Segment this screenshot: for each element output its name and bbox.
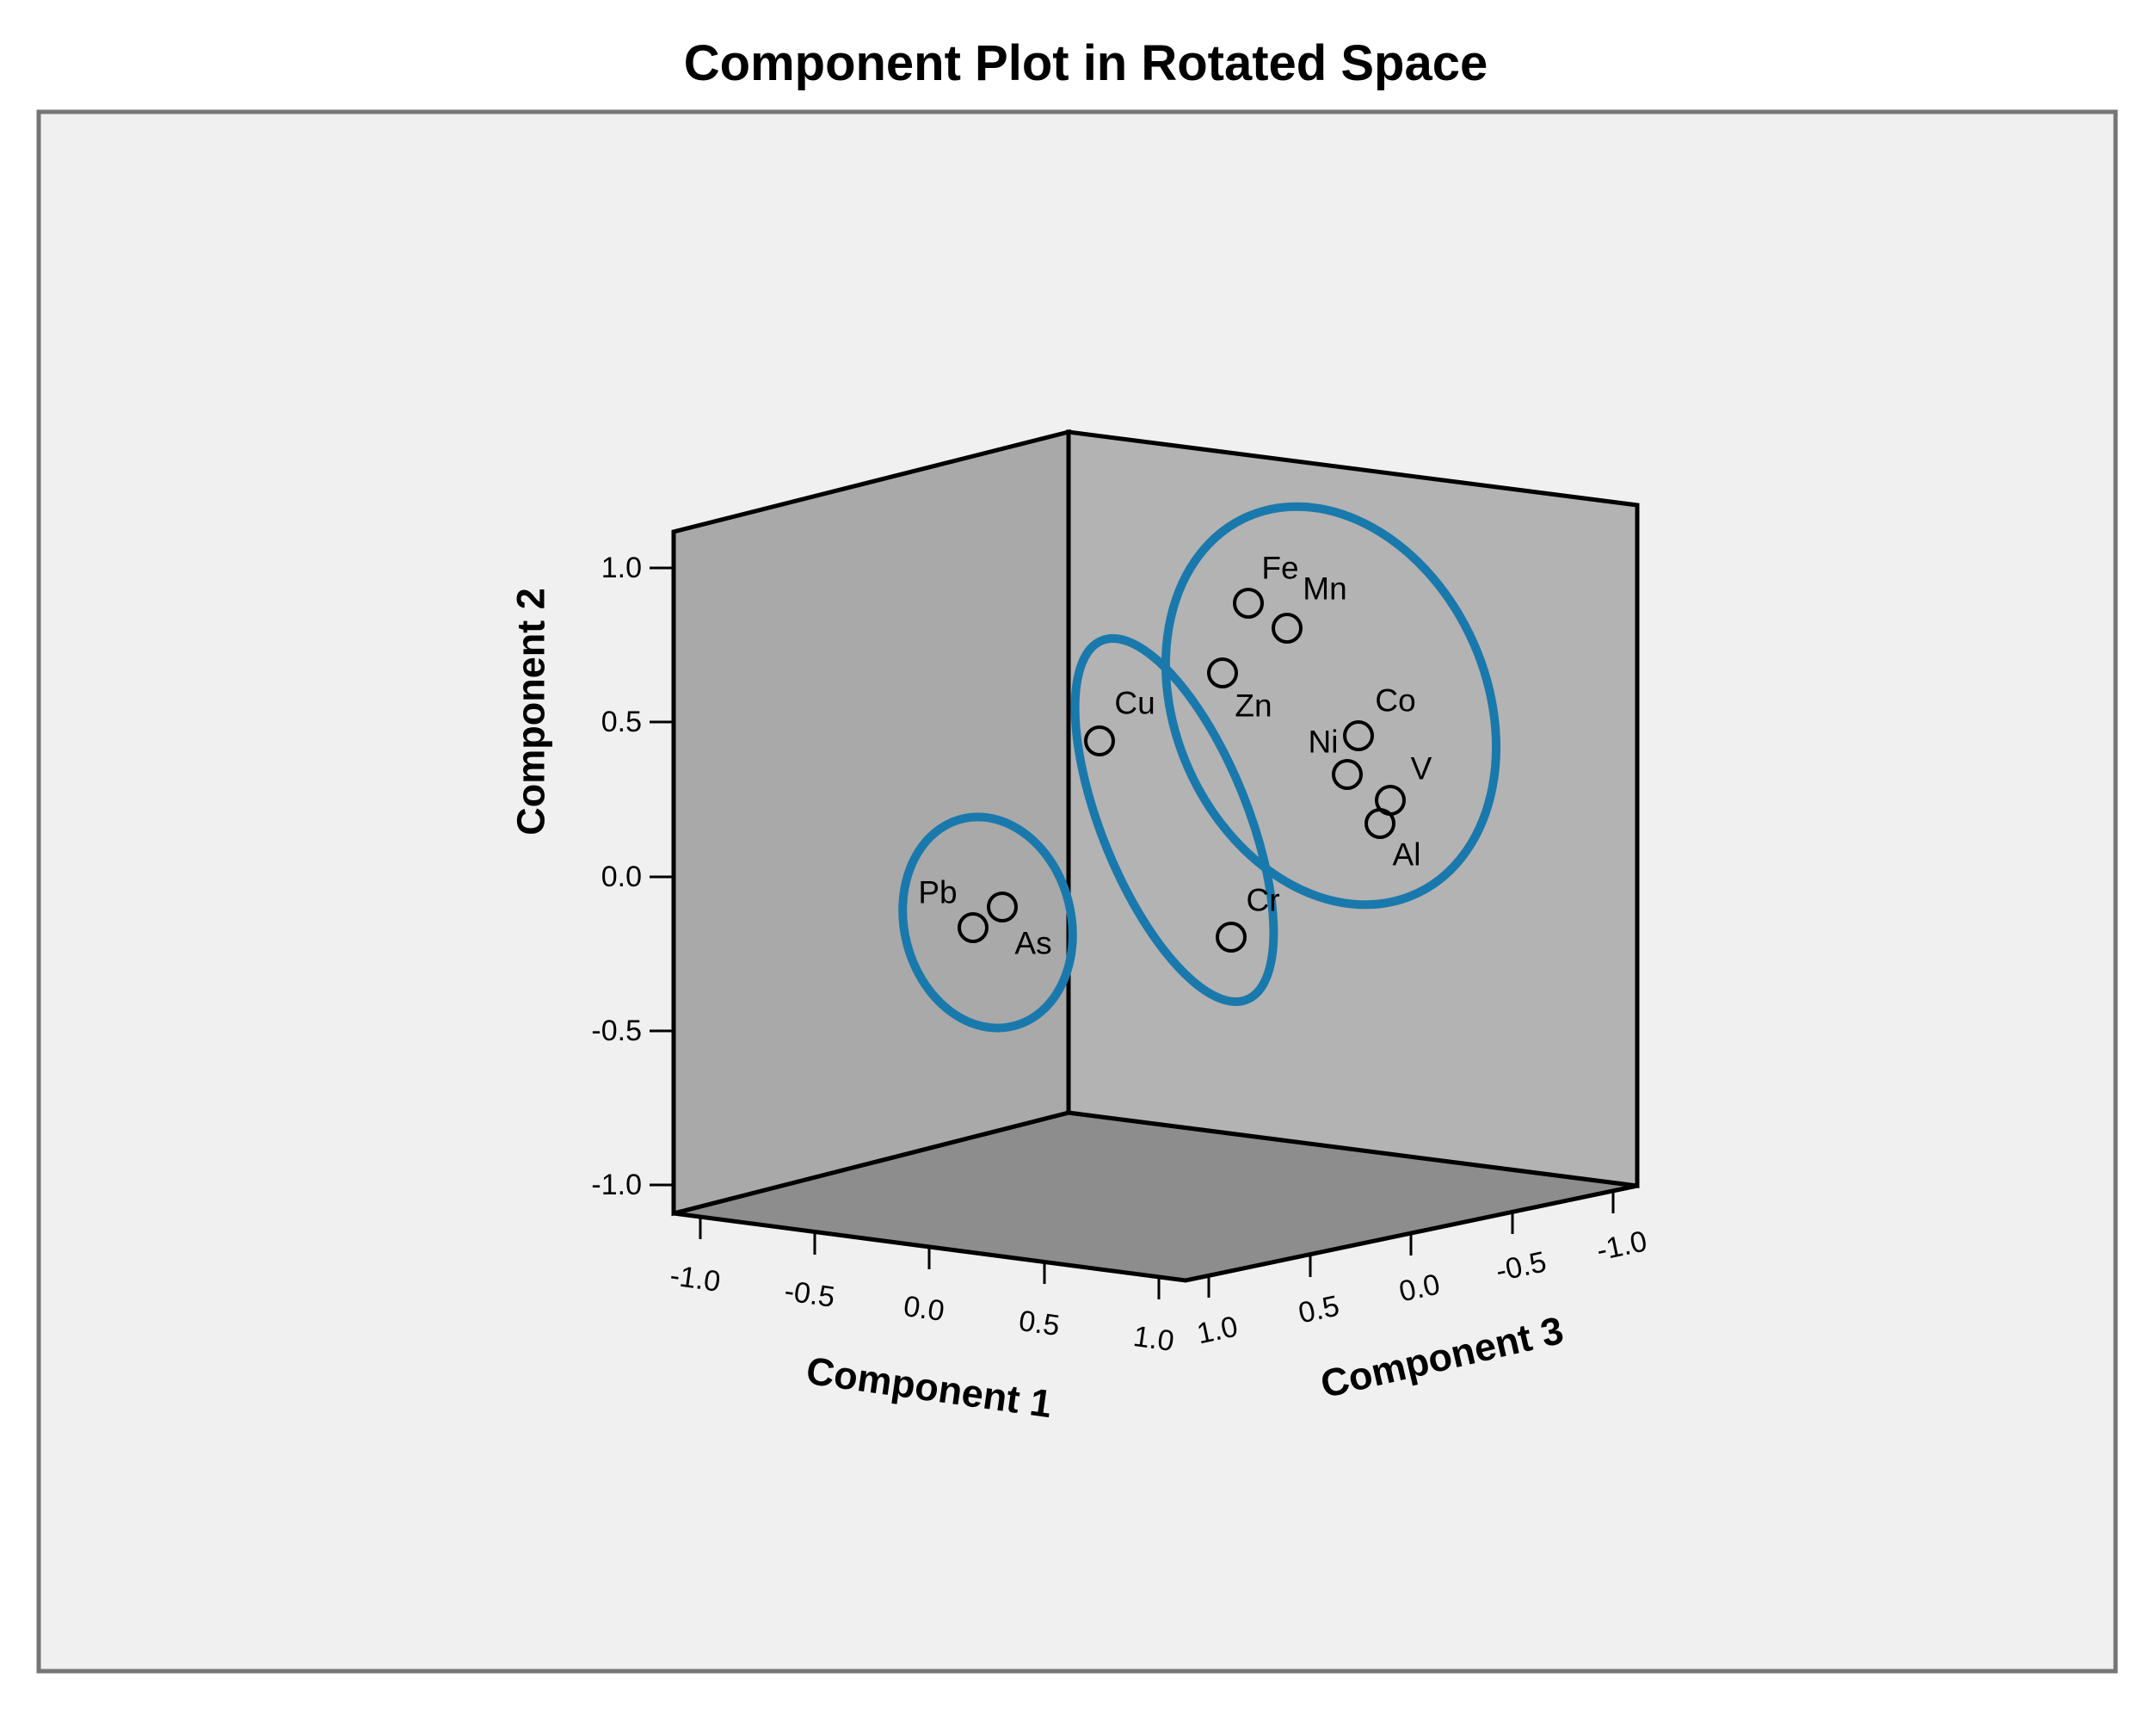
y-axis-tick-label: 1.0 <box>601 552 642 584</box>
chart-title: Component Plot in Rotated Space <box>684 35 1488 91</box>
point-label-cu: Cu <box>1114 686 1155 721</box>
y-axis-tick-label: 0.0 <box>601 861 642 893</box>
point-label-co: Co <box>1375 683 1415 719</box>
y-axis-title: Component 2 <box>509 588 553 836</box>
point-label-cr: Cr <box>1246 883 1279 918</box>
component-plot-chart: Component Plot in Rotated Space 1.0 0.5 … <box>0 0 2156 1709</box>
point-label-pb: Pb <box>918 875 957 910</box>
x-axis-tick-label: 1.0 <box>1131 1320 1176 1358</box>
y-axis-tick-label: -0.5 <box>591 1015 642 1047</box>
x-axis-tick-label: -0.5 <box>782 1274 836 1314</box>
x-axis-tick-label: 0.0 <box>902 1290 946 1328</box>
point-label-zn: Zn <box>1235 688 1272 724</box>
point-label-al: Al <box>1393 837 1421 873</box>
point-label-v: V <box>1411 751 1432 787</box>
point-label-as: As <box>1014 926 1051 961</box>
point-label-mn: Mn <box>1303 571 1346 607</box>
cube-right-wall-face <box>1069 432 1637 1186</box>
x-axis-tick-label: 0.5 <box>1017 1305 1062 1342</box>
cube <box>674 432 1637 1280</box>
point-label-fe: Fe <box>1261 551 1298 586</box>
x-axis-tick-label: -1.0 <box>668 1259 722 1299</box>
y-axis-tick-label: -1.0 <box>591 1169 642 1201</box>
y-axis-tick-label: 0.5 <box>601 706 642 738</box>
point-label-ni: Ni <box>1309 725 1339 760</box>
